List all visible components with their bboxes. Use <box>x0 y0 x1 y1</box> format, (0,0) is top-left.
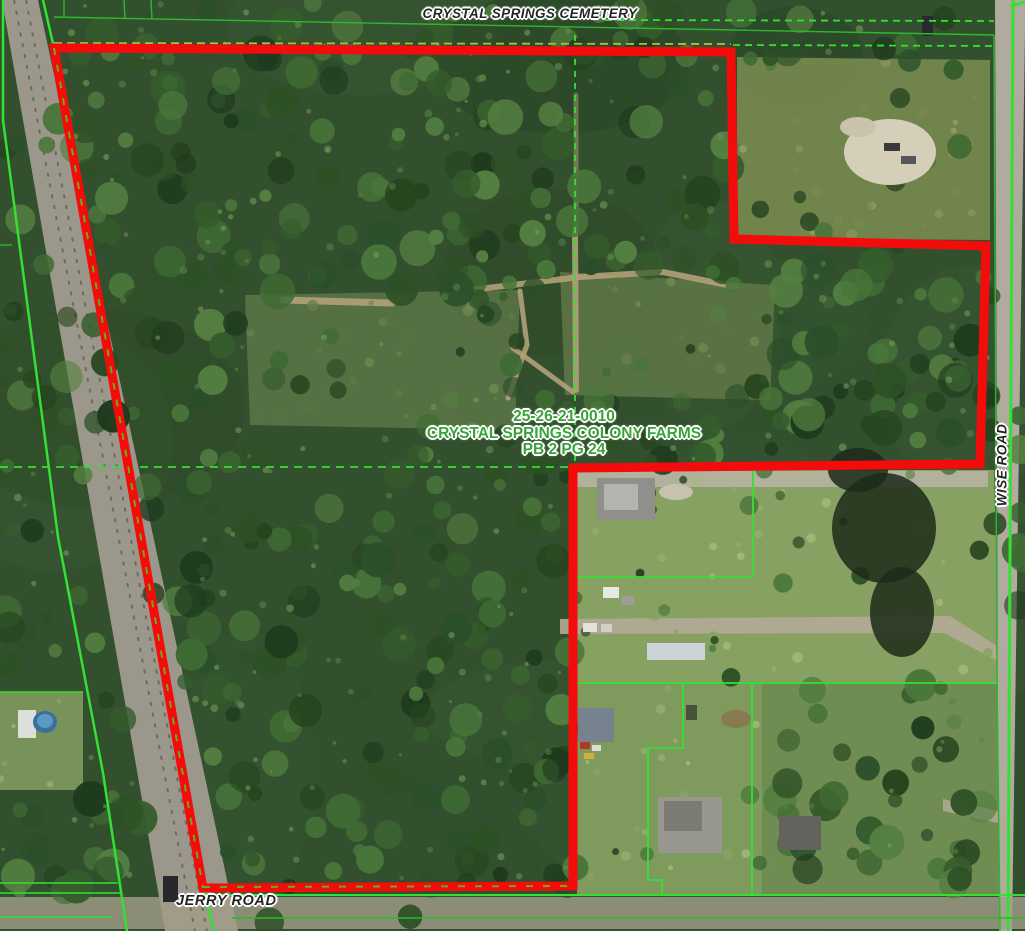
truck-yellow <box>584 753 594 759</box>
truck-white <box>592 745 601 751</box>
car-sand-2 <box>901 156 916 164</box>
ne-shed-1 <box>603 587 619 598</box>
farm-house <box>578 708 614 742</box>
car-sand-1 <box>884 143 900 151</box>
truck-red <box>580 742 590 749</box>
wise-road-label: WISE ROAD <box>995 424 1010 507</box>
cemetery-tick-2 <box>124 0 125 19</box>
aerial-parcel-map[interactable]: CRYSTAL SPRINGS CEMETERY 25-26-21-0010 C… <box>0 0 1025 931</box>
trail-west <box>283 300 392 303</box>
se-house-2 <box>779 816 821 850</box>
pool-parcel-clearing <box>0 692 83 790</box>
aerial-imagery <box>0 0 1025 931</box>
mid-clearing-east <box>560 272 775 400</box>
cemetery-label: CRYSTAL SPRINGS CEMETERY <box>423 6 638 21</box>
cemetery-tick-3 <box>151 0 152 19</box>
ne-shed-2 <box>622 596 634 605</box>
ne-driveway-loop <box>659 484 693 500</box>
car-dirt-road <box>601 624 612 632</box>
parcel-id-text: 25-26-21-0010 <box>427 409 701 426</box>
pool-inner <box>37 714 53 728</box>
parcel-plat-text: PB 2 PG 24 <box>427 442 701 459</box>
jerry-road-surface <box>0 897 1025 929</box>
dark-shed <box>686 705 697 720</box>
parcel-name-text: CRYSTAL SPRINGS COLONY FARMS <box>427 426 701 443</box>
ne-house-roof <box>604 484 638 510</box>
van-dirt-road <box>583 623 597 632</box>
sand-clearing-2 <box>840 117 876 137</box>
greenhouse <box>647 643 705 660</box>
se-house-roof <box>664 801 702 831</box>
debris-pile <box>721 710 751 728</box>
jerry-road-label: JERRY ROAD <box>176 893 277 909</box>
selected-parcel-label: 25-26-21-0010 CRYSTAL SPRINGS COLONY FAR… <box>427 409 701 459</box>
